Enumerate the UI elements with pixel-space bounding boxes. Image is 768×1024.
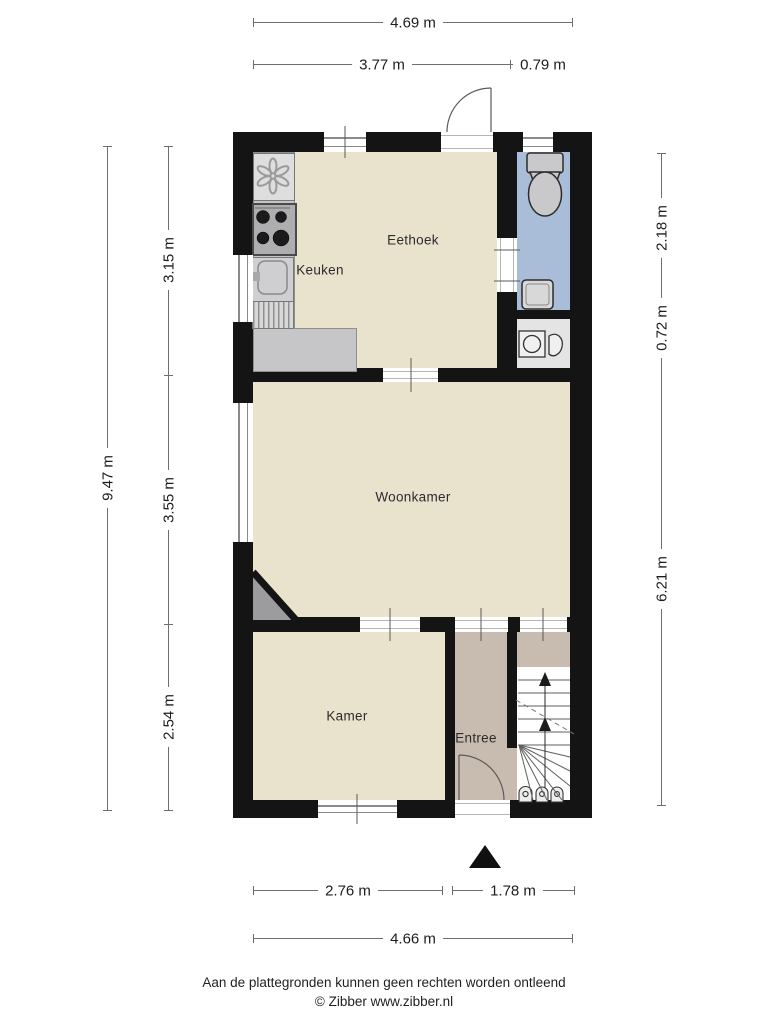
room-label-kamer: Kamer xyxy=(326,709,367,724)
tick xyxy=(657,805,666,806)
front-door-opening xyxy=(455,800,510,818)
wall-kamer-entree xyxy=(445,632,455,800)
window-left-woonkamer xyxy=(233,403,253,542)
dim-left-seg1: 3.15 m xyxy=(161,230,178,290)
dim-right-seg2: 0.72 m xyxy=(654,298,671,358)
window-top-eethoek xyxy=(324,132,366,152)
tick xyxy=(253,60,254,69)
tick xyxy=(572,934,573,943)
kitchen-sink-icon xyxy=(252,257,294,302)
dim-left-seg3: 2.54 m xyxy=(161,687,178,747)
room-label-eethoek: Eethoek xyxy=(387,233,439,248)
wall-wc-bottom xyxy=(507,310,570,319)
footer-disclaimer: Aan de plattegronden kunnen geen rechten… xyxy=(0,974,768,993)
tick xyxy=(164,146,173,147)
room-closet-floor xyxy=(517,319,570,369)
floorplan-page: Eethoek Keuken Woonkamer Kamer Entree 4.… xyxy=(0,0,768,1024)
dim-top-left: 3.77 m xyxy=(352,57,412,74)
tick xyxy=(442,886,443,895)
dim-left-seg2: 3.55 m xyxy=(161,470,178,530)
tick xyxy=(452,886,453,895)
tick xyxy=(574,886,575,895)
tick xyxy=(103,146,112,147)
room-label-woonkamer: Woonkamer xyxy=(375,490,450,505)
dim-right-seg1: 2.18 m xyxy=(654,198,671,258)
top-door-swing xyxy=(447,88,491,132)
kitchen-counter-l xyxy=(253,328,357,372)
footer-copyright: © Zibber www.zibber.nl xyxy=(0,993,768,1012)
tick xyxy=(572,18,573,27)
tick xyxy=(510,60,511,69)
room-label-entree: Entree xyxy=(455,731,497,746)
window-bottom-kamer xyxy=(318,800,397,818)
dim-right-seg3: 6.21 m xyxy=(654,549,671,609)
dim-bottom-left: 2.76 m xyxy=(318,883,378,900)
opening-eethoek-wc xyxy=(497,238,517,292)
room-label-keuken: Keuken xyxy=(296,263,344,278)
wall-entree-stairs xyxy=(507,625,517,748)
fan-icon xyxy=(253,153,295,201)
tick xyxy=(164,624,173,625)
tick xyxy=(253,886,254,895)
window-top-wc xyxy=(523,132,553,152)
footer: Aan de plattegronden kunnen geen rechten… xyxy=(0,974,768,1012)
opening-woonkamer-hal xyxy=(520,617,567,632)
stair-landing-floor xyxy=(517,632,570,667)
opening-woonkamer-kamer xyxy=(360,617,420,632)
dim-top-right: 0.79 m xyxy=(513,57,573,74)
tick xyxy=(164,810,173,811)
outer-wall-right xyxy=(570,132,592,818)
north-triangle-icon xyxy=(469,845,501,868)
opening-woonkamer-entree xyxy=(455,617,508,632)
drainer-icon xyxy=(252,301,294,329)
stairs-floor xyxy=(517,667,570,800)
window-left-keuken xyxy=(233,255,253,322)
tick xyxy=(657,153,666,154)
tick xyxy=(253,934,254,943)
outer-wall-bottom xyxy=(233,800,592,818)
door-opening-top xyxy=(441,132,493,152)
tick xyxy=(103,810,112,811)
dim-left-total: 9.47 m xyxy=(100,448,117,508)
dim-bottom-total: 4.66 m xyxy=(383,931,443,948)
dim-top-total: 4.69 m xyxy=(383,15,443,32)
room-wc-floor xyxy=(517,152,570,310)
dim-bottom-right: 1.78 m xyxy=(483,883,543,900)
tick xyxy=(253,18,254,27)
stove-icon xyxy=(252,203,297,256)
opening-eethoek-woonkamer xyxy=(383,368,438,382)
tick xyxy=(164,375,173,376)
